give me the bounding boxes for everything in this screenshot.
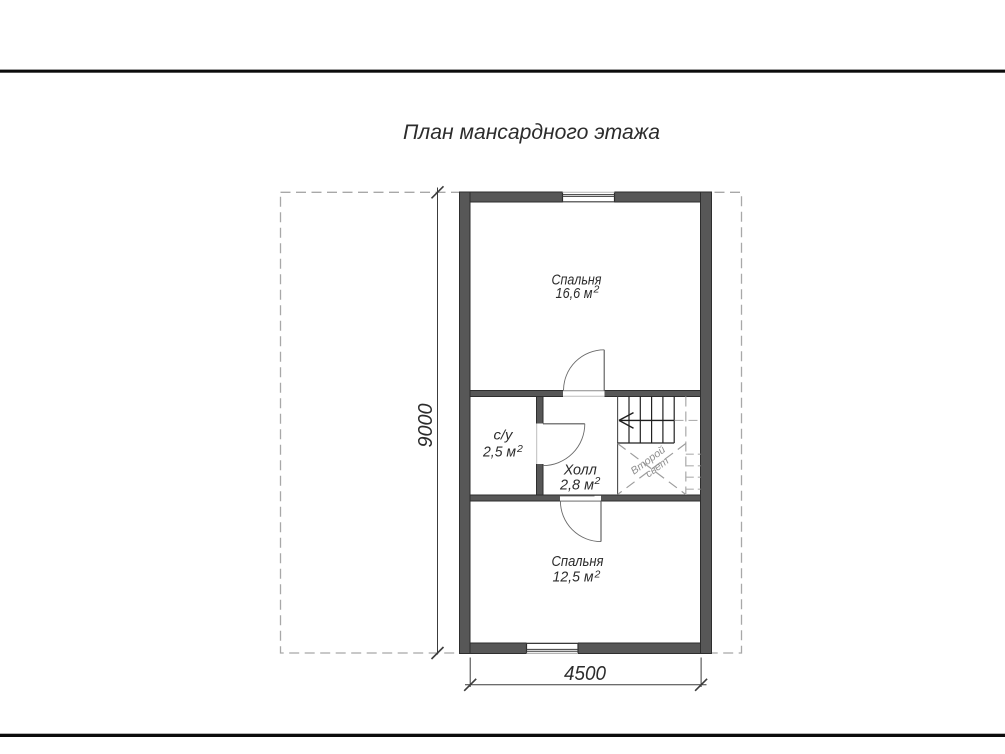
svg-text:9000: 9000: [415, 404, 437, 448]
svg-text:16,6 м: 16,6 м: [556, 285, 593, 302]
svg-text:Спальня: Спальня: [552, 553, 604, 570]
svg-text:2: 2: [516, 443, 523, 455]
svg-text:2: 2: [594, 569, 601, 581]
svg-text:2,8 м: 2,8 м: [559, 477, 594, 494]
svg-text:2: 2: [594, 475, 601, 487]
svg-text:4500: 4500: [564, 663, 606, 685]
svg-text:12,5 м: 12,5 м: [553, 569, 594, 586]
svg-text:2: 2: [593, 284, 600, 296]
svg-text:План мансардного этажа: План мансардного этажа: [403, 121, 660, 144]
svg-text:2,5 м: 2,5 м: [482, 444, 516, 461]
svg-text:с/у: с/у: [494, 428, 514, 443]
